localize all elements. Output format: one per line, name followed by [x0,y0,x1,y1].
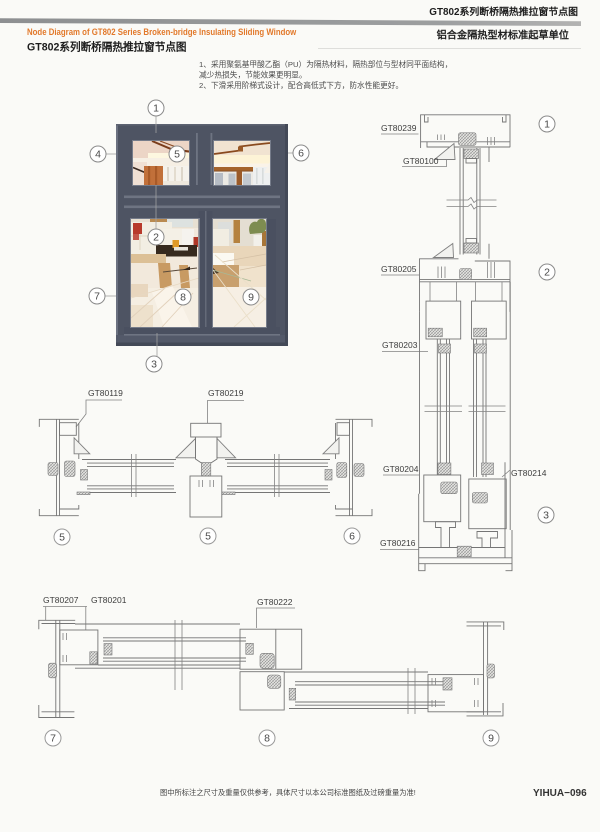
svg-text:7: 7 [94,291,100,303]
svg-text:图中所标注之尺寸及重量仅供参考，具体尺寸以本公司标准图纸及过: 图中所标注之尺寸及重量仅供参考，具体尺寸以本公司标准图纸及过磅重量为准! [160,788,416,797]
svg-text:3: 3 [151,359,157,371]
svg-text:3: 3 [543,510,549,522]
svg-text:GT80216: GT80216 [380,538,416,548]
svg-text:GT80214: GT80214 [511,468,547,478]
svg-text:6: 6 [298,148,304,160]
svg-text:2: 2 [544,267,550,279]
svg-text:1、采用聚氨基甲酸乙酯（PU）为隔热材料，隔热部位与型材同平: 1、采用聚氨基甲酸乙酯（PU）为隔热材料，隔热部位与型材同平面结构， [199,59,452,69]
svg-text:9: 9 [488,733,494,745]
svg-text:8: 8 [264,733,270,745]
svg-text:Node Diagram of GT802 Series B: Node Diagram of GT802 Series Broken-brid… [27,27,297,38]
svg-text:5: 5 [59,532,65,544]
svg-text:GT80100: GT80100 [403,156,439,166]
svg-text:5: 5 [174,149,180,161]
svg-text:GT80207: GT80207 [43,595,79,605]
svg-text:7: 7 [50,733,56,745]
svg-text:1: 1 [544,119,550,131]
svg-text:9: 9 [248,292,254,304]
svg-text:铝合金隔热型材标准起草单位: 铝合金隔热型材标准起草单位 [437,29,569,42]
svg-text:8: 8 [180,292,186,304]
svg-text:GT80205: GT80205 [381,264,417,274]
svg-text:GT80222: GT80222 [257,597,293,607]
svg-text:2: 2 [153,232,159,244]
svg-text:GT802系列断桥隔热推拉窗节点图: GT802系列断桥隔热推拉窗节点图 [429,5,578,18]
svg-text:GT80204: GT80204 [383,464,419,474]
svg-text:6: 6 [349,531,355,543]
svg-text:GT80201: GT80201 [91,595,127,605]
svg-text:2、下滑采用阶梯式设计，配合高低式下方，防水性能更好。: 2、下滑采用阶梯式设计，配合高低式下方，防水性能更好。 [199,80,403,90]
svg-text:GT80203: GT80203 [382,340,418,350]
svg-text:GT80219: GT80219 [208,388,244,398]
svg-text:1: 1 [153,103,159,115]
svg-text:GT802系列断桥隔热推拉窗节点图: GT802系列断桥隔热推拉窗节点图 [27,41,187,54]
svg-text:5: 5 [205,531,211,543]
svg-text:YIHUA−096: YIHUA−096 [533,788,587,799]
svg-text:GT80119: GT80119 [88,388,123,398]
svg-text:减少热损失，节能效果更明显。: 减少热损失，节能效果更明显。 [199,70,307,80]
svg-text:GT80239: GT80239 [381,123,417,133]
svg-text:4: 4 [95,149,101,161]
